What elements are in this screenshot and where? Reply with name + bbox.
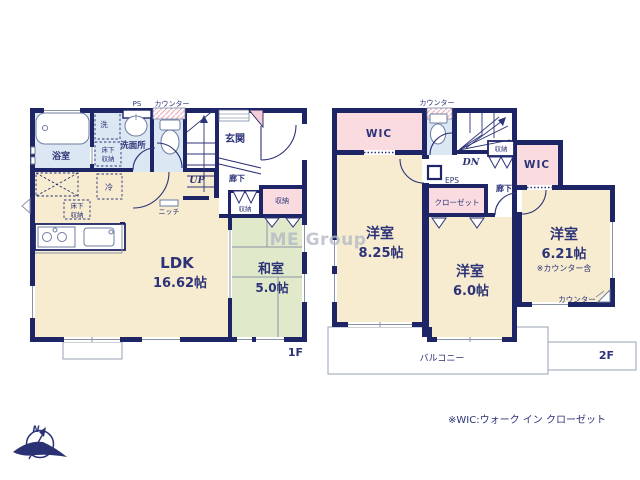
ldk-label: LDK	[160, 254, 195, 272]
toilet-bowl-1f	[161, 130, 179, 154]
washitsu-label: 和室	[258, 261, 284, 277]
toilet-tank-1f	[160, 120, 180, 130]
underfloor1-label-l2: 収納	[102, 154, 115, 163]
room2-label: 洋室	[456, 263, 484, 280]
toilet-counter-1f	[153, 108, 185, 119]
washitsu-size-label: 5.0帖	[255, 280, 288, 295]
niche-label: ニッチ	[159, 208, 180, 216]
hallway-label-2f: 廊下	[496, 183, 512, 193]
room1-label: 洋室	[366, 225, 394, 242]
underfloor2-label-l2: 収納	[71, 210, 84, 219]
room3-label: 洋室	[550, 226, 578, 243]
toilet-tank-2f	[430, 114, 447, 123]
room3-size-label: 6.21帖	[541, 246, 586, 262]
watermark: ME Group	[270, 230, 367, 250]
porch-outline	[63, 342, 122, 359]
wic-right-label: WIC	[524, 159, 550, 171]
toilet-bowl-2f	[431, 124, 446, 144]
wic-left-label: WIC	[366, 128, 392, 140]
laundry-label: 洗	[100, 119, 108, 129]
niche-mark	[160, 200, 178, 206]
storage-pink-label: 収納	[275, 196, 289, 205]
dn-label: DN	[462, 157, 480, 168]
balcony-label: バルコニー	[420, 353, 465, 364]
counter-label-2f: カウンター	[420, 98, 455, 107]
up-label: UP	[189, 175, 205, 186]
underfloor2-label-l1: 床下	[71, 201, 85, 210]
room3-note-label: ※カウンター含	[537, 263, 592, 273]
ps-label: PS	[133, 100, 142, 108]
eps-label: EPS	[445, 176, 459, 185]
compass-n-label: N	[32, 425, 39, 435]
vent-mark	[22, 199, 30, 213]
floor-plan: PS カウンター 浴室 洗 洗面所 床下 収納 床下 収納 冷 ニッチ UP 玄…	[0, 0, 640, 480]
shoe-counter	[219, 110, 249, 121]
washroom-label: 洗面所	[120, 140, 146, 151]
floor1-label: 1F	[288, 346, 303, 359]
ldk-size-label: 16.62帖	[153, 275, 207, 291]
floor2-label: 2F	[599, 349, 614, 362]
lower-roof-outline	[548, 342, 636, 370]
genkan-label: 玄関	[225, 132, 245, 145]
compass-icon: N	[13, 425, 67, 459]
fridge-label: 冷	[105, 182, 113, 192]
storage-label-2f: 収納	[495, 144, 508, 153]
room2-size-label: 6.0帖	[453, 283, 489, 299]
hallway-label-1f: 廊下	[229, 173, 245, 183]
floor-1f	[22, 108, 307, 359]
wic-note: ※WIC:ウォーク イン クローゼット	[448, 414, 606, 426]
closet-label: クローゼット	[435, 197, 480, 207]
storage-small-label: 収納	[239, 204, 252, 213]
desk-counter-label: カウンター	[558, 295, 596, 304]
underfloor1-label-l1: 床下	[102, 145, 116, 154]
bathroom-label: 浴室	[52, 150, 70, 162]
counter-label-1f: カウンター	[155, 99, 190, 108]
eps-shaft	[428, 166, 441, 179]
